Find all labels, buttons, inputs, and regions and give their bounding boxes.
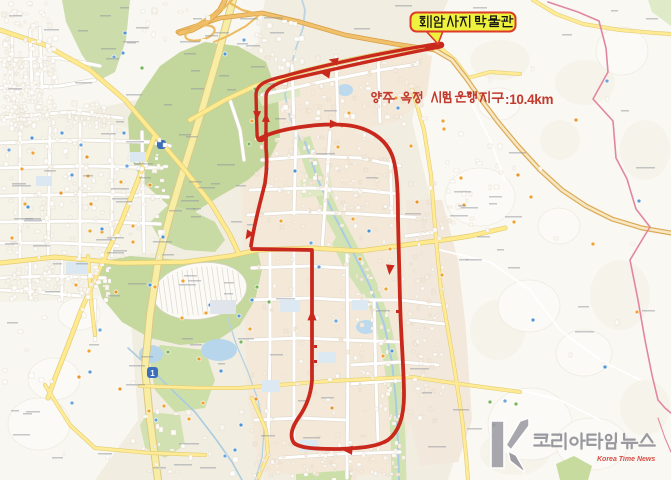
svg-text::10.4km: :10.4km (505, 92, 553, 107)
svg-text:1: 1 (150, 369, 155, 378)
svg-text:Korea Time News: Korea Time News (597, 456, 655, 463)
